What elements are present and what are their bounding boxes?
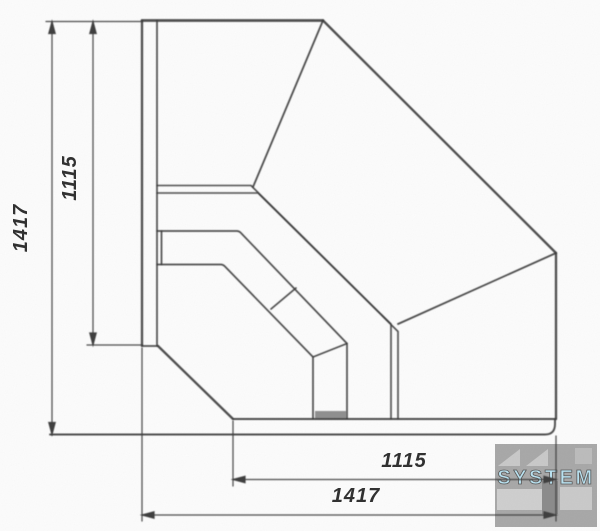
scan-noise-overlay bbox=[0, 0, 600, 531]
corner-counter-plan-drawing: SYSTEM bbox=[0, 0, 600, 531]
technical-drawing-scan: SYSTEM bbox=[0, 0, 600, 531]
